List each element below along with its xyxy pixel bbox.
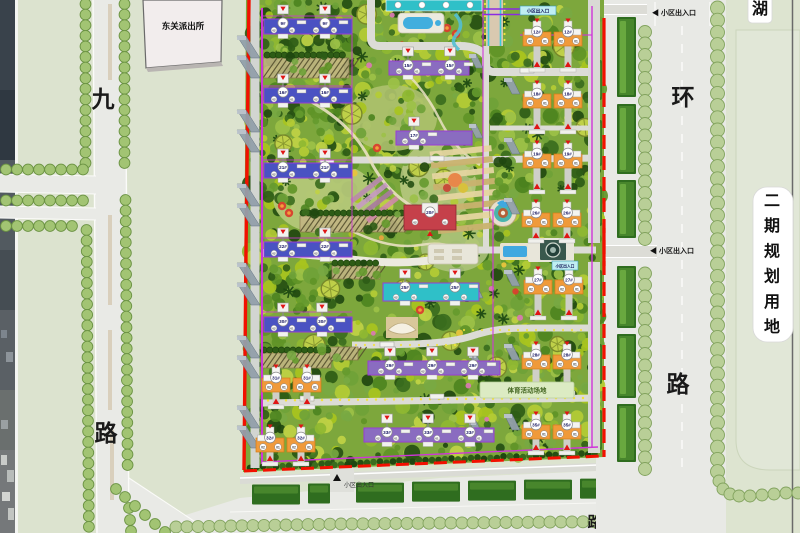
svg-text:01: 01 bbox=[443, 220, 447, 224]
svg-text:01: 01 bbox=[290, 327, 294, 331]
svg-text:01: 01 bbox=[394, 437, 398, 441]
svg-text:15#: 15# bbox=[404, 63, 412, 68]
svg-text:26#: 26# bbox=[563, 211, 571, 216]
svg-text:01: 01 bbox=[457, 70, 461, 74]
svg-text:25#: 25# bbox=[401, 285, 409, 290]
svg-text:01: 01 bbox=[290, 252, 294, 256]
svg-text:01: 01 bbox=[543, 162, 547, 166]
svg-text:01: 01 bbox=[415, 70, 419, 74]
svg-text:02: 02 bbox=[272, 327, 276, 331]
svg-text:28#: 28# bbox=[563, 353, 571, 358]
svg-text:02: 02 bbox=[462, 370, 466, 374]
svg-text:15#: 15# bbox=[446, 63, 454, 68]
svg-text:01: 01 bbox=[421, 140, 425, 144]
svg-text:31#: 31# bbox=[303, 376, 311, 381]
svg-text:20#: 20# bbox=[426, 210, 434, 215]
svg-text:02: 02 bbox=[311, 327, 315, 331]
svg-text:25#: 25# bbox=[451, 285, 459, 290]
svg-text:29#: 29# bbox=[386, 363, 394, 368]
svg-text:01: 01 bbox=[543, 40, 547, 44]
svg-text:二: 二 bbox=[764, 193, 780, 210]
svg-text:01: 01 bbox=[276, 446, 280, 450]
svg-text:02: 02 bbox=[261, 446, 265, 450]
svg-text:18#: 18# bbox=[564, 92, 572, 97]
svg-text:02: 02 bbox=[314, 173, 318, 177]
svg-text:湖: 湖 bbox=[752, 0, 768, 18]
svg-text:02: 02 bbox=[558, 221, 562, 225]
svg-text:12#: 12# bbox=[564, 30, 572, 35]
svg-text:体育活动场地: 体育活动场地 bbox=[508, 386, 548, 395]
svg-text:01: 01 bbox=[313, 386, 317, 390]
svg-text:26#: 26# bbox=[532, 211, 540, 216]
svg-text:01: 01 bbox=[462, 296, 466, 300]
svg-text:01: 01 bbox=[412, 296, 416, 300]
svg-text:33#: 33# bbox=[424, 430, 432, 435]
svg-text:环: 环 bbox=[672, 84, 695, 110]
svg-text:01: 01 bbox=[307, 446, 311, 450]
svg-text:02: 02 bbox=[559, 102, 563, 106]
svg-text:01: 01 bbox=[332, 252, 336, 256]
svg-text:02: 02 bbox=[272, 173, 276, 177]
svg-text:27#: 27# bbox=[565, 278, 573, 283]
svg-text:02: 02 bbox=[272, 252, 276, 256]
svg-text:01: 01 bbox=[542, 221, 546, 225]
svg-text:12#: 12# bbox=[533, 30, 541, 35]
svg-text:02: 02 bbox=[421, 370, 425, 374]
svg-text:02: 02 bbox=[314, 252, 318, 256]
svg-text:02: 02 bbox=[527, 433, 531, 437]
svg-text:17#: 17# bbox=[410, 133, 418, 138]
svg-text:21#: 21# bbox=[279, 165, 287, 170]
svg-text:02: 02 bbox=[267, 386, 271, 390]
svg-text:35#: 35# bbox=[563, 423, 571, 428]
svg-text:19#: 19# bbox=[564, 152, 572, 157]
svg-text:30#: 30# bbox=[279, 319, 287, 324]
svg-text:01: 01 bbox=[397, 370, 401, 374]
svg-text:22#: 22# bbox=[279, 244, 287, 249]
svg-text:路: 路 bbox=[95, 420, 119, 446]
svg-text:小区出入口: 小区出入口 bbox=[344, 481, 374, 489]
svg-text:02: 02 bbox=[397, 70, 401, 74]
svg-text:02: 02 bbox=[528, 102, 532, 106]
svg-text:02: 02 bbox=[558, 433, 562, 437]
svg-text:◀ 小区出入口: ◀ 小区出入口 bbox=[652, 8, 696, 17]
svg-text:期: 期 bbox=[764, 216, 780, 235]
svg-text:01: 01 bbox=[290, 173, 294, 177]
svg-text:32#: 32# bbox=[266, 436, 274, 441]
svg-text:02: 02 bbox=[272, 98, 276, 102]
svg-text:01: 01 bbox=[439, 370, 443, 374]
svg-text:小区出入口: 小区出入口 bbox=[555, 264, 575, 269]
svg-text:33#: 33# bbox=[466, 430, 474, 435]
svg-text:02: 02 bbox=[314, 29, 318, 33]
svg-text:02: 02 bbox=[298, 386, 302, 390]
svg-text:29#: 29# bbox=[469, 363, 477, 368]
svg-text:16#: 16# bbox=[321, 90, 329, 95]
svg-text:01: 01 bbox=[573, 363, 577, 367]
svg-text:01: 01 bbox=[573, 433, 577, 437]
svg-text:01: 01 bbox=[574, 40, 578, 44]
svg-text:02: 02 bbox=[527, 363, 531, 367]
svg-text:地: 地 bbox=[764, 317, 780, 336]
svg-text:01: 01 bbox=[477, 437, 481, 441]
svg-text:28#: 28# bbox=[532, 353, 540, 358]
svg-text:规: 规 bbox=[764, 242, 780, 260]
svg-text:02: 02 bbox=[439, 70, 443, 74]
svg-text:02: 02 bbox=[394, 296, 398, 300]
svg-text:02: 02 bbox=[558, 363, 562, 367]
svg-text:02: 02 bbox=[314, 98, 318, 102]
svg-text:18#: 18# bbox=[533, 92, 541, 97]
svg-text:01: 01 bbox=[290, 29, 294, 33]
svg-text:东关派出所: 东关派出所 bbox=[162, 21, 205, 31]
svg-text:01: 01 bbox=[542, 433, 546, 437]
svg-text:01: 01 bbox=[480, 370, 484, 374]
svg-text:02: 02 bbox=[272, 29, 276, 33]
svg-text:01: 01 bbox=[543, 102, 547, 106]
svg-text:01: 01 bbox=[544, 288, 548, 292]
svg-text:02: 02 bbox=[527, 221, 531, 225]
svg-text:01: 01 bbox=[329, 327, 333, 331]
svg-text:01: 01 bbox=[574, 102, 578, 106]
svg-text:35#: 35# bbox=[532, 423, 540, 428]
svg-text:01: 01 bbox=[542, 363, 546, 367]
svg-text:02: 02 bbox=[403, 140, 407, 144]
svg-text:02: 02 bbox=[417, 437, 421, 441]
svg-text:01: 01 bbox=[573, 221, 577, 225]
svg-text:30#: 30# bbox=[318, 319, 326, 324]
svg-text:32#: 32# bbox=[297, 436, 305, 441]
svg-text:02: 02 bbox=[560, 288, 564, 292]
svg-text:划: 划 bbox=[764, 267, 780, 286]
svg-text:02: 02 bbox=[529, 288, 533, 292]
svg-text:02: 02 bbox=[292, 446, 296, 450]
svg-text:27#: 27# bbox=[534, 278, 542, 283]
svg-text:01: 01 bbox=[332, 173, 336, 177]
svg-text:小区出入口: 小区出入口 bbox=[527, 8, 550, 15]
svg-text:01: 01 bbox=[290, 98, 294, 102]
svg-text:02: 02 bbox=[559, 40, 563, 44]
svg-text:◀ 小区出入口: ◀ 小区出入口 bbox=[650, 246, 694, 255]
svg-text:用: 用 bbox=[764, 293, 780, 311]
svg-text:31#: 31# bbox=[272, 376, 280, 381]
svg-text:九: 九 bbox=[91, 86, 115, 112]
svg-text:22#: 22# bbox=[321, 244, 329, 249]
svg-text:9#: 9# bbox=[280, 21, 286, 26]
svg-text:02: 02 bbox=[559, 162, 563, 166]
svg-text:路: 路 bbox=[667, 371, 691, 397]
svg-text:02: 02 bbox=[413, 220, 417, 224]
svg-text:01: 01 bbox=[332, 29, 336, 33]
svg-text:33#: 33# bbox=[383, 430, 391, 435]
svg-text:01: 01 bbox=[575, 288, 579, 292]
svg-text:21#: 21# bbox=[321, 165, 329, 170]
svg-text:19#: 19# bbox=[533, 152, 541, 157]
svg-text:01: 01 bbox=[282, 386, 286, 390]
svg-text:9#: 9# bbox=[322, 21, 328, 26]
svg-text:01: 01 bbox=[332, 98, 336, 102]
svg-text:01: 01 bbox=[435, 437, 439, 441]
svg-text:16#: 16# bbox=[279, 90, 287, 95]
svg-text:02: 02 bbox=[444, 296, 448, 300]
svg-text:02: 02 bbox=[376, 437, 380, 441]
svg-text:29#: 29# bbox=[428, 363, 436, 368]
svg-text:02: 02 bbox=[528, 40, 532, 44]
svg-text:02: 02 bbox=[528, 162, 532, 166]
svg-text:01: 01 bbox=[574, 162, 578, 166]
svg-text:02: 02 bbox=[379, 370, 383, 374]
svg-text:02: 02 bbox=[459, 437, 463, 441]
